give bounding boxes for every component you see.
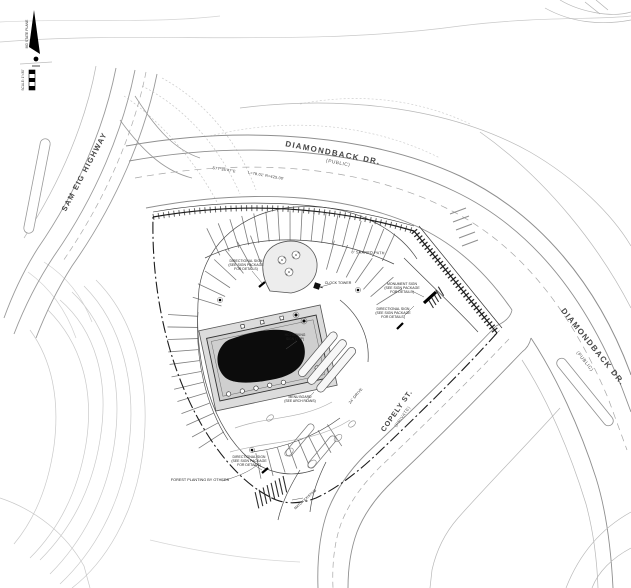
patio [263, 241, 324, 293]
directional-sign-note-south: DIRECTIONAL SIGN (SEE SIGN PACKAGE FOR D… [231, 455, 266, 467]
forest-planting-note: FOREST PLANTING BY OTHERS [171, 478, 229, 482]
lane-ticks [450, 208, 478, 246]
directional-sign-symbol [262, 468, 268, 473]
scale-label: SCALE: 1"=30' [22, 69, 26, 90]
note-line: FOR DETAILS) [228, 267, 263, 271]
monument-sign-note: MONUMENT SIGN (SEE SIGN PACKAGE FOR DETA… [384, 282, 419, 294]
note-line: SIGN (TYP) [285, 338, 306, 342]
contour-lines [0, 0, 631, 588]
directional-sign-note-ne: DIRECTIONAL SIGN (SEE SIGN PACKAGE FOR D… [375, 307, 410, 319]
sam-eig-highway-road [4, 66, 200, 338]
directional-sign-symbol [397, 323, 403, 329]
note-line: (SEE ARCH PLANS) [284, 400, 315, 404]
copely-st-road [318, 310, 631, 588]
site-plan-linework [0, 0, 631, 588]
site-plan-drawing: SAM EIG HIGHWAY DIAMONDBACK DR. (PUBLIC)… [0, 0, 631, 588]
hc-parking-sign-note: HC PARKING SIGN (TYP) [285, 334, 306, 342]
scale-bar [29, 70, 35, 90]
note-line: FOR DETAILS) [231, 463, 266, 467]
menu-board-note: MENU BOARD (SEE ARCH PLANS) [284, 396, 315, 404]
note-line: FOR DETAILS) [384, 290, 419, 294]
clock-tower-note: CLOCK TOWER [325, 281, 352, 285]
state-plane-label: MD STATE PLANE [26, 20, 30, 49]
directional-sign-note-west: DIRECTIONAL SIGN (SEE SIGN PACKAGE FOR D… [228, 259, 263, 271]
north-arrow [29, 10, 40, 90]
note-line: FOR DETAILS) [375, 315, 410, 319]
